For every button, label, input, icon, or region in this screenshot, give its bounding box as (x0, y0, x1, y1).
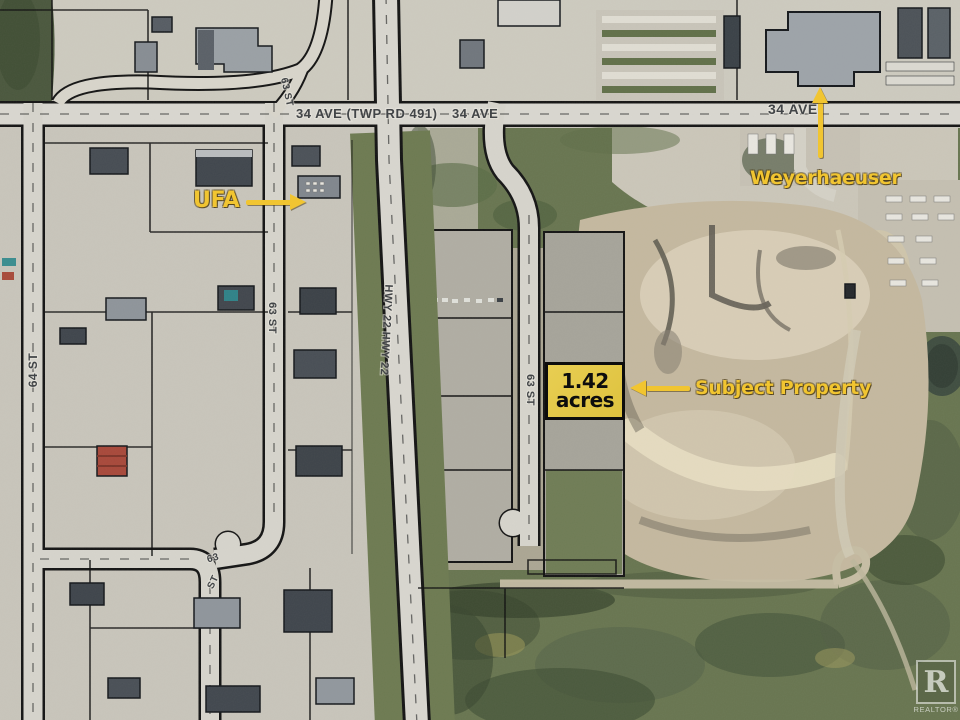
weyerhaeuser-arrow-head (812, 87, 828, 103)
subject-property-arrow-head (630, 380, 646, 396)
ufa-arrow-head (290, 194, 306, 210)
subject-property-label: Subject Property (695, 377, 871, 399)
realtor-logo-letter: R (924, 665, 949, 700)
map-canvas: 34 AVE (TWP RD 491) 34 AVE 34 AVE 64 ST … (0, 0, 960, 720)
ufa-arrow-line (246, 200, 292, 205)
photo-grain (0, 0, 960, 720)
subject-parcel-highlight: 1.42 acres (545, 362, 625, 420)
weyerhaeuser-label: Weyerhaeuser (750, 167, 901, 189)
acreage-unit: acres (556, 391, 614, 410)
weyerhaeuser-arrow-line (818, 102, 823, 158)
ufa-label: UFA (193, 188, 240, 213)
aerial-map: 34 AVE (TWP RD 491) 34 AVE 34 AVE 64 ST … (0, 0, 960, 720)
realtor-logo-text: REALTOR® (913, 705, 958, 714)
subject-property-arrow-line (646, 386, 690, 391)
realtor-watermark: R REALTOR® (914, 660, 958, 718)
realtor-logo-icon: R (916, 660, 956, 704)
